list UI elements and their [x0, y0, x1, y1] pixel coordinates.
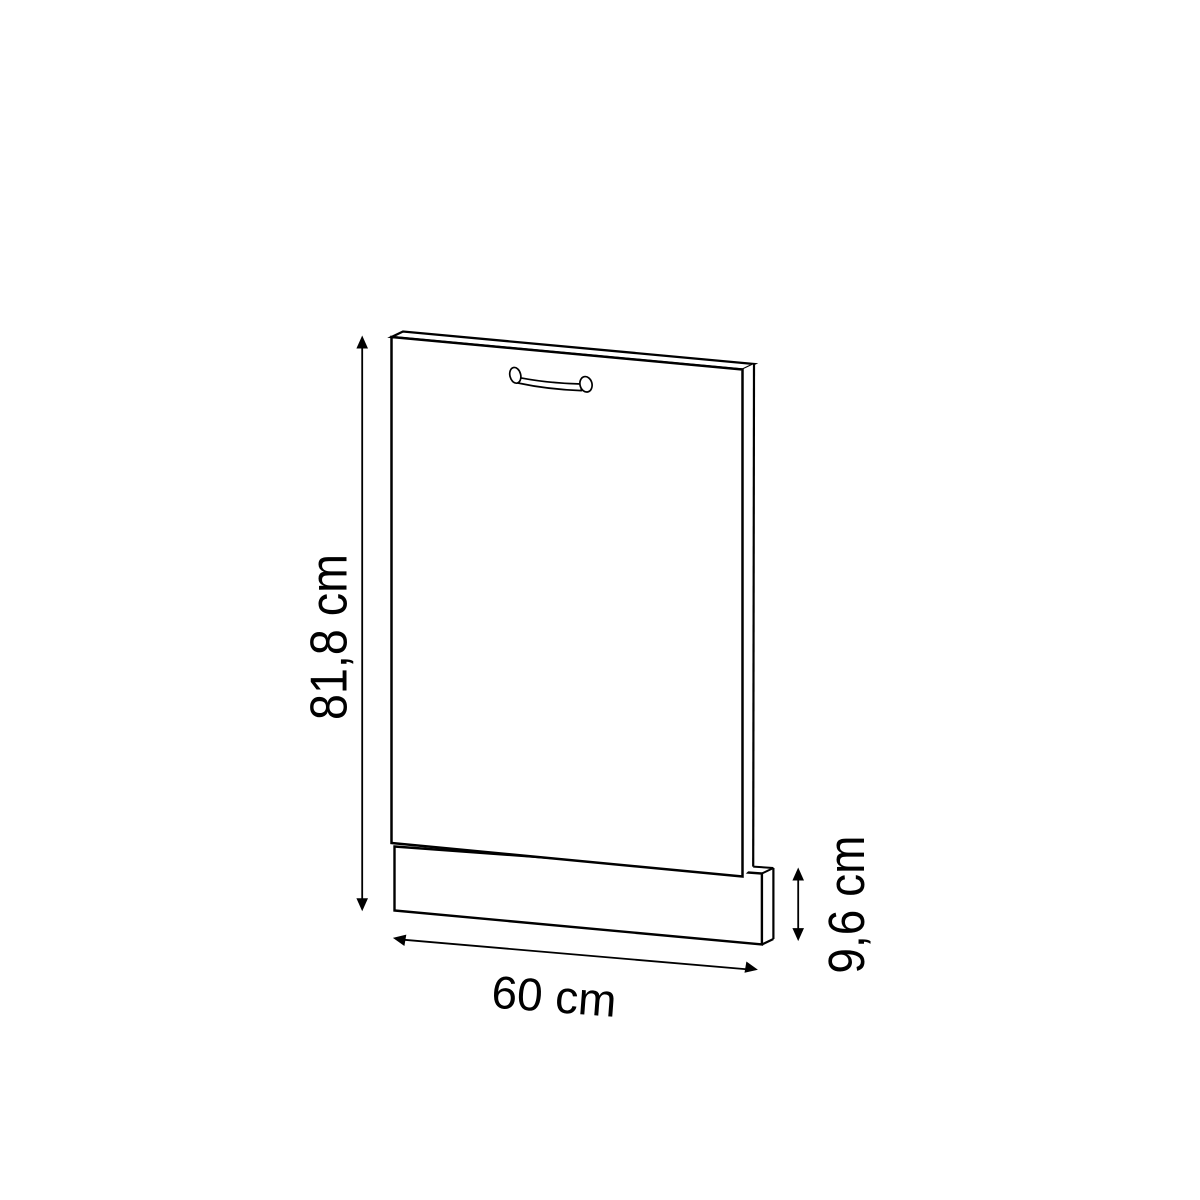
- svg-text:9,6 cm: 9,6 cm: [818, 836, 875, 974]
- svg-text:81,8 cm: 81,8 cm: [300, 554, 358, 720]
- svg-text:60 cm: 60 cm: [490, 966, 619, 1027]
